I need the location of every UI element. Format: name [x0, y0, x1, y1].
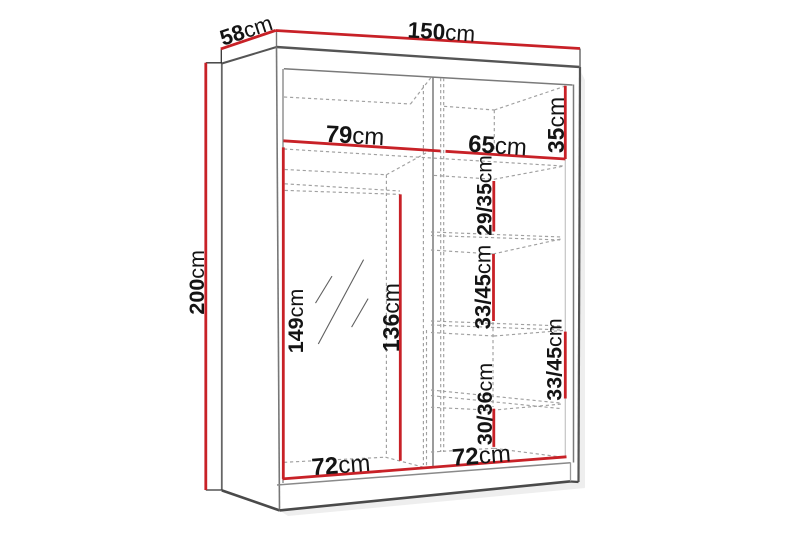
svg-text:58cm: 58cm — [217, 10, 276, 50]
svg-text:72cm: 72cm — [451, 440, 512, 471]
svg-text:149cm: 149cm — [284, 289, 308, 354]
svg-text:30/36cm: 30/36cm — [473, 363, 497, 445]
svg-text:33/45cm: 33/45cm — [543, 318, 567, 400]
svg-text:72cm: 72cm — [311, 450, 372, 481]
svg-text:33/45cm: 33/45cm — [471, 245, 496, 329]
svg-text:35cm: 35cm — [543, 97, 569, 153]
svg-text:150cm: 150cm — [407, 17, 476, 46]
svg-text:136cm: 136cm — [378, 283, 404, 352]
svg-text:200cm: 200cm — [185, 250, 209, 315]
svg-text:29/35cm: 29/35cm — [474, 155, 497, 236]
svg-text:79cm: 79cm — [325, 121, 385, 151]
